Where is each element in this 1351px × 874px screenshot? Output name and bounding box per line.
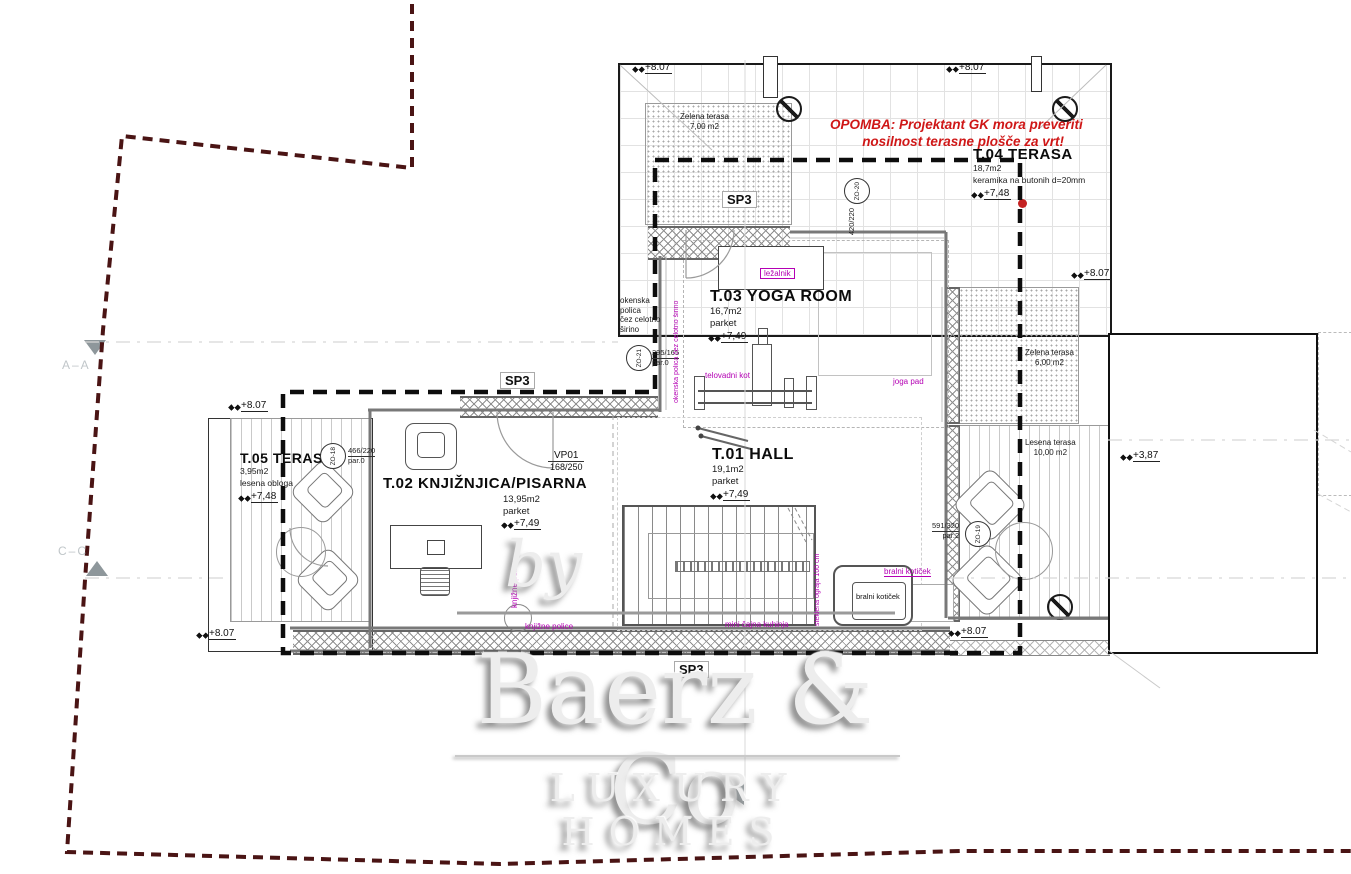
annotation-book-shelves-vertical: knjižne police	[510, 528, 519, 608]
wall-band-main-top	[460, 396, 658, 418]
corner-leader	[1108, 650, 1160, 688]
elevation-marker: +8.07	[634, 62, 672, 74]
room-finish-t04: keramika na butonih d=20mm	[973, 175, 1085, 187]
gym-plate-mid	[784, 378, 794, 408]
wood-terrace-10-label: Lesena terasa 10,00 m2	[1025, 438, 1076, 457]
elevation-value: +8.07	[959, 62, 986, 74]
elevation-glyph	[228, 401, 241, 414]
annotation-window-sill-vertical: okenska polica čez celotno širino	[673, 288, 680, 403]
terrace-area: 6,00 m2	[1025, 358, 1074, 368]
window-size: 420/220	[847, 208, 856, 235]
armchair-t02	[405, 423, 457, 470]
elevation-value: +8.07	[961, 626, 988, 638]
stair-tick-strip	[675, 561, 810, 572]
door-label-vp01: VP01 168/250	[548, 450, 584, 472]
elevation-glyph	[238, 492, 251, 505]
elevation-value: +8.07	[209, 628, 236, 640]
elevation-value: +8.07	[1084, 268, 1111, 280]
annotation-lounger: ležalnik	[760, 268, 795, 279]
elevation-value: +8.07	[645, 62, 672, 74]
room-title-t01: T.01 HALL	[712, 446, 794, 464]
section-cc-triangle	[86, 561, 108, 576]
elevation-marker: +8.07	[198, 628, 236, 640]
room-label-t04: T.04 TERASA 18,7m2 keramika na butonih d…	[973, 146, 1085, 200]
room-area-t04: 18,7m2	[973, 163, 1085, 175]
window-code: ZO-18	[330, 447, 337, 465]
elevation-marker: +8.07	[230, 400, 268, 412]
room-level-t05: +7,48	[251, 491, 278, 503]
wall-band-bottom-right	[950, 640, 1110, 656]
window-marker-zo19: ZO-19	[965, 521, 991, 547]
desk-chair	[420, 567, 450, 596]
terrace-name: Zelena terasa	[1025, 348, 1074, 358]
elevation-glyph	[710, 490, 723, 503]
annotation-yoga-mat: joga pad	[893, 377, 924, 386]
elevation-marker: +8.07	[950, 626, 988, 638]
chair-cushion	[968, 480, 1015, 527]
sp3-label-mid: SP3	[500, 372, 535, 389]
annotation-window-sill-block: okenska polica čez celotno širino	[620, 296, 672, 334]
room-finish-t02: parket	[503, 506, 541, 518]
roof-post-2	[1031, 56, 1042, 92]
section-label-aa: A–A	[62, 358, 91, 372]
annex-dashed-extension	[1318, 332, 1351, 496]
room-title-t03: T.03 YOGA ROOM	[710, 288, 852, 306]
gym-post	[752, 344, 772, 406]
room-area-t01: 19,1m2	[712, 464, 794, 476]
elevation-marker: +8.07	[1073, 268, 1111, 280]
wall-band-main-bottom	[293, 630, 950, 655]
room-label-t01: T.01 HALL 19,1m2 parket +7,49	[712, 446, 794, 501]
elevation-glyph	[1071, 269, 1084, 282]
annex-building-outline	[1108, 333, 1318, 654]
annotation-book-shelves: knjižne police	[525, 622, 573, 631]
window-marker-zo18: ZO-18	[320, 443, 346, 469]
green-terrace-6-label: Zelena terasa 6,00 m2	[1025, 348, 1074, 367]
gym-plate-left	[694, 376, 705, 410]
window-marker-zo20: ZO-20	[844, 178, 870, 204]
room-label-t03: T.03 YOGA ROOM 16,7m2 parket +7,49	[710, 288, 852, 343]
sp3-label-bottom: SP3	[674, 661, 709, 678]
section-label-cc: C–C	[58, 544, 88, 558]
terrace-right-table	[995, 522, 1053, 580]
room-finish-t01: parket	[712, 476, 794, 488]
elevation-glyph	[708, 332, 721, 345]
elevation-glyph	[196, 629, 209, 642]
window-code: ZO-21	[636, 349, 643, 367]
watermark-divider	[455, 755, 900, 757]
elevation-value: +8.07	[241, 400, 268, 412]
room-title-t02: T.02 KNJIŽNJICA/PISARNA	[383, 475, 587, 492]
desk-drawer	[427, 540, 445, 555]
room-level-t04: +7,48	[984, 188, 1011, 200]
sill-line3: širino	[620, 325, 672, 335]
elevation-glyph	[632, 63, 645, 76]
annotation-reading-corner: bralni kotiček	[884, 567, 931, 577]
window-code: ZO-20	[854, 182, 861, 200]
sill-line1: okenska polica	[620, 296, 672, 315]
terrace-name: Zelena terasa	[680, 112, 729, 122]
sp3-label-top: SP3	[722, 191, 757, 208]
elevation-glyph	[948, 627, 961, 640]
window-size-zo19: 591/320 par.2	[932, 522, 959, 540]
room-finish-t03: parket	[710, 318, 852, 330]
section-bb-triangle	[728, 783, 744, 805]
annotation-gym-corner: telovadni kot	[705, 371, 750, 380]
room-sublabel-t02: 13,95m2 parket +7,49	[503, 494, 541, 530]
engineer-note-line1: OPOMBA: Projektant GK mora preveriti	[830, 116, 1078, 133]
elevation-value: +3,87	[1133, 450, 1160, 462]
drain-icon	[776, 96, 802, 122]
gym-bar-1	[698, 390, 812, 392]
terrace-area: 7,00 m2	[680, 122, 729, 132]
annotation-tea-kitchen: mini čajna kuhinja	[725, 620, 789, 629]
watermark-tagline: LUXURY HOMES	[428, 766, 922, 854]
door-arc-entrance	[497, 412, 553, 468]
elevation-glyph	[946, 63, 959, 76]
window-marker-zo21: ZO-21	[626, 345, 652, 371]
roof-post-1	[763, 56, 778, 98]
gym-plate-right	[806, 376, 817, 410]
room-level-t03: +7,49	[721, 331, 748, 343]
annotation-reading-corner-black: bralni kotiček	[856, 592, 900, 601]
green-terrace-7-label: Zelena terasa 7,00 m2	[680, 112, 729, 131]
window-size-zo20: 420/220	[848, 208, 857, 235]
armchair-t02-cushion	[417, 432, 445, 458]
room-area-t03: 16,7m2	[710, 306, 852, 318]
door-size: 168/250	[548, 462, 584, 472]
engineer-note: OPOMBA: Projektant GK mora preveriti nos…	[830, 116, 1078, 150]
elevation-marker: +8.07	[948, 62, 986, 74]
sill-line2: čez celotno	[620, 315, 672, 325]
section-aa-triangle	[84, 340, 106, 355]
terrace-area: 10,00 m2	[1025, 448, 1076, 458]
reading-armchair-cushion	[852, 582, 906, 620]
room-area-t05: 3,95m2	[240, 466, 333, 478]
terrace-t05-table	[276, 527, 326, 577]
room-finish-t05: lesena obloga	[240, 478, 333, 490]
window-code: ZO-19	[975, 525, 982, 543]
room-level-t01: +7,49	[723, 489, 750, 501]
gym-bar-2	[698, 402, 812, 404]
elevation-glyph	[971, 189, 984, 202]
room-title-t04: T.04 TERASA	[973, 146, 1085, 163]
floor-plan-canvas: OPOMBA: Projektant GK mora preveriti nos…	[0, 0, 1351, 874]
window-sub: par.2	[932, 532, 959, 541]
room-area-t02: 13,95m2	[503, 494, 541, 506]
drain-icon	[1047, 594, 1073, 620]
window-sub: par.0	[348, 457, 375, 466]
red-marker-dot	[1018, 199, 1027, 208]
window-size-zo18: 466/220 par.0	[348, 447, 375, 465]
elevation-marker-annex: +3,87	[1122, 450, 1160, 462]
elevation-glyph	[1120, 451, 1133, 464]
door-code: VP01	[548, 450, 584, 462]
annotation-glass-railing: steklena ograja 100 cm	[814, 558, 821, 626]
terrace-name: Lesena terasa	[1025, 438, 1076, 448]
